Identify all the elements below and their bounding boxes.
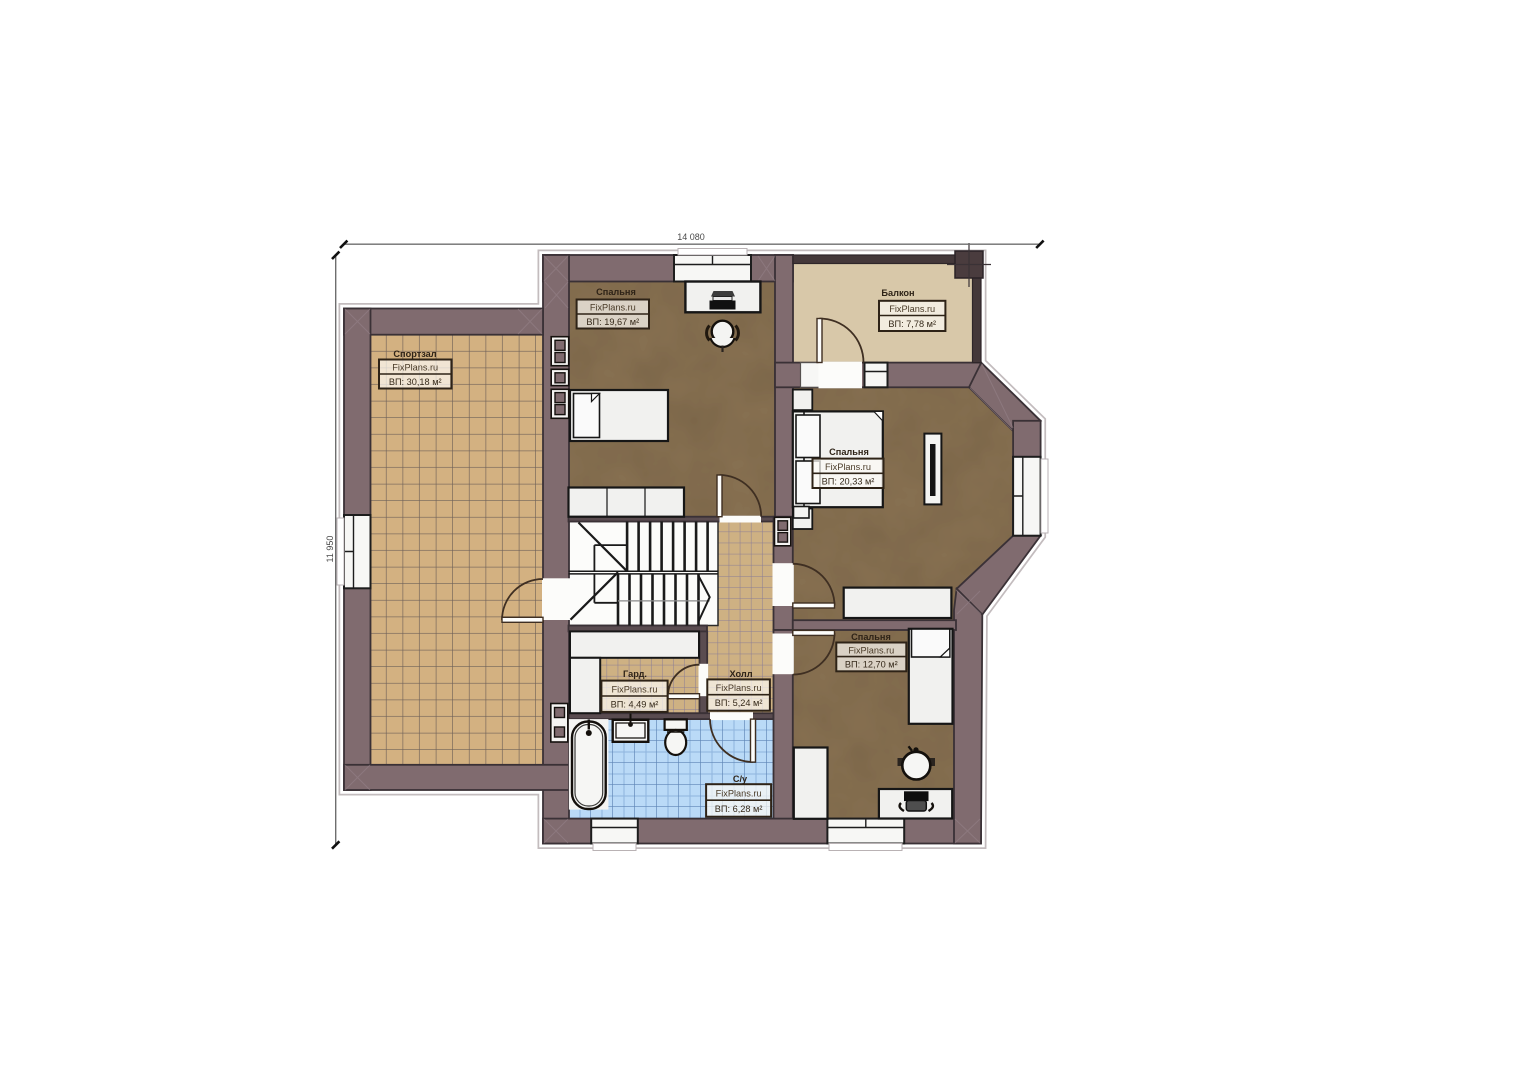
svg-text:14 080: 14 080 xyxy=(677,232,705,242)
svg-text:FixPlans.ru: FixPlans.ru xyxy=(590,303,636,313)
svg-text:Спальня: Спальня xyxy=(596,287,636,297)
svg-text:Холл: Холл xyxy=(729,669,752,679)
svg-text:ВП: 6,28 м²: ВП: 6,28 м² xyxy=(715,804,763,814)
svg-text:ВП: 12,70 м²: ВП: 12,70 м² xyxy=(845,660,898,670)
svg-text:Балкон: Балкон xyxy=(881,288,914,298)
svg-text:ВП: 7,78 м²: ВП: 7,78 м² xyxy=(888,319,936,329)
svg-text:С/у: С/у xyxy=(733,774,748,784)
svg-text:ВП: 20,33 м²: ВП: 20,33 м² xyxy=(822,476,875,486)
svg-text:Спальня: Спальня xyxy=(829,447,869,457)
svg-text:FixPlans.ru: FixPlans.ru xyxy=(825,462,871,472)
svg-text:ВП: 30,18 м²: ВП: 30,18 м² xyxy=(389,377,442,387)
svg-text:FixPlans.ru: FixPlans.ru xyxy=(612,685,658,695)
svg-text:ВП: 5,24 м²: ВП: 5,24 м² xyxy=(715,698,763,708)
svg-text:Гард.: Гард. xyxy=(623,669,647,679)
svg-text:FixPlans.ru: FixPlans.ru xyxy=(716,789,762,799)
svg-text:Спальня: Спальня xyxy=(851,632,891,642)
svg-text:FixPlans.ru: FixPlans.ru xyxy=(392,363,438,373)
svg-text:ВП: 19,67 м²: ВП: 19,67 м² xyxy=(586,317,639,327)
svg-text:ВП: 4,49 м²: ВП: 4,49 м² xyxy=(611,700,659,710)
svg-text:Спортзал: Спортзал xyxy=(393,349,436,359)
svg-text:11 950: 11 950 xyxy=(325,536,335,563)
svg-text:FixPlans.ru: FixPlans.ru xyxy=(716,683,762,693)
svg-text:FixPlans.ru: FixPlans.ru xyxy=(848,645,894,655)
svg-text:FixPlans.ru: FixPlans.ru xyxy=(889,304,935,314)
